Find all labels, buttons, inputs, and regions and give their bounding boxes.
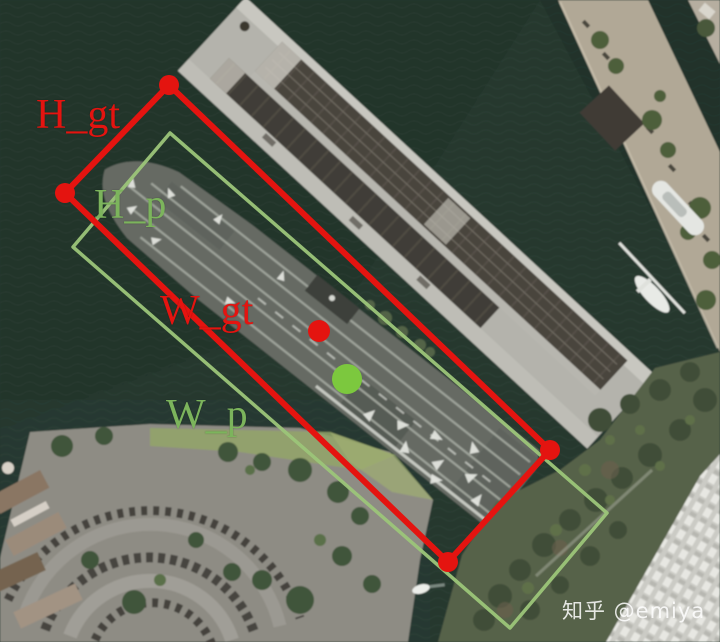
peninsula-land [0, 424, 433, 642]
gt-height-label: H_gt [36, 94, 120, 136]
gt-width-label: W_gt [160, 290, 253, 332]
prediction-center-dot [332, 364, 362, 394]
annotated-satellite-figure: H_gt H_p W_gt W_p 知乎 @emiya [0, 0, 720, 642]
gt-corner-dot [55, 183, 75, 203]
gt-corner-dot [540, 440, 560, 460]
gt-corner-dot [159, 75, 179, 95]
ground-truth-center-dot [308, 320, 330, 342]
pred-width-label: W_p [166, 394, 248, 436]
gt-corner-dot [438, 552, 458, 572]
watermark: 知乎 @emiya [562, 595, 705, 625]
pred-height-label: H_p [94, 184, 166, 226]
